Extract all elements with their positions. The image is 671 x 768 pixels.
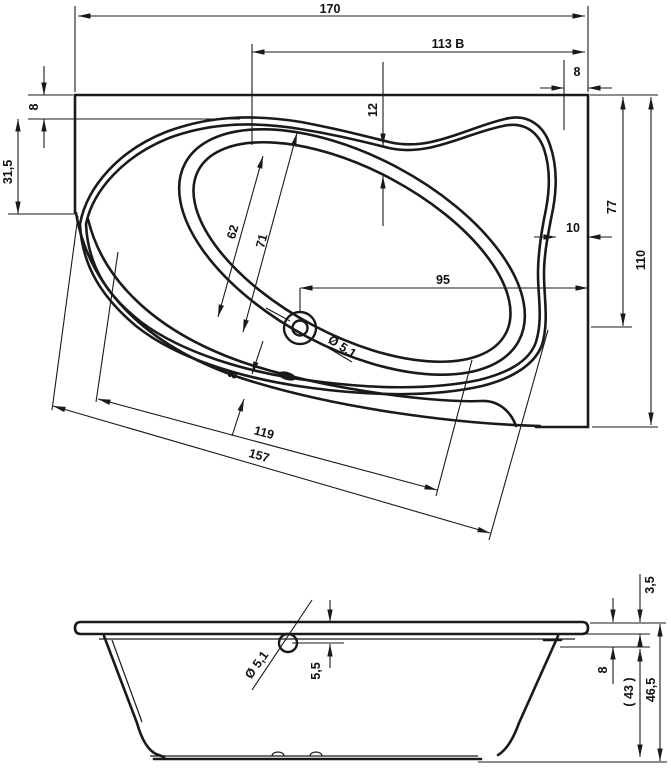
dim-rim-offset-left-label: 8 (28, 104, 41, 111)
deck-edge-inner (86, 124, 549, 387)
dim-flange-height-label: 8 (597, 667, 610, 674)
top-view-dimensions (8, 6, 658, 540)
right-wall (498, 636, 558, 755)
dim-left-edge-depth-label: 31,5 (2, 160, 15, 184)
dim-rim-gap-right-label: 10 (566, 222, 580, 235)
dim-total-height-label: 46,5 (645, 678, 658, 702)
dim-drain-depth-label: 77 (606, 200, 619, 214)
dim-rim-thickness-label: 3,5 (644, 576, 657, 593)
dim-overflow-offset-label: 5,5 (310, 662, 323, 679)
overflow-marker-dot (277, 370, 297, 383)
left-wall (104, 636, 164, 757)
apron-outer-curve (76, 213, 540, 426)
dim-width-b-label: 113 B (432, 38, 465, 51)
side-view-details (99, 639, 575, 756)
dim-drain-to-edge-label: 95 (436, 274, 450, 287)
dim-overall-depth-label: 110 (635, 250, 648, 270)
dim-overall-width-label: 170 (320, 3, 341, 16)
dim-inner-depth-label: ( 43 ) (623, 677, 636, 706)
dim-rim-offset-right-label: 8 (574, 66, 581, 79)
bathtub-technical-drawing: 170 113 B 8 8 31,5 12 62 71 95 Ø 5,1 10 … (0, 0, 671, 768)
top-view-outline (75, 79, 588, 427)
dim-rim-shelf-width-label: 12 (367, 103, 380, 117)
rim-slab (75, 622, 588, 634)
drawing-linework (0, 0, 671, 768)
